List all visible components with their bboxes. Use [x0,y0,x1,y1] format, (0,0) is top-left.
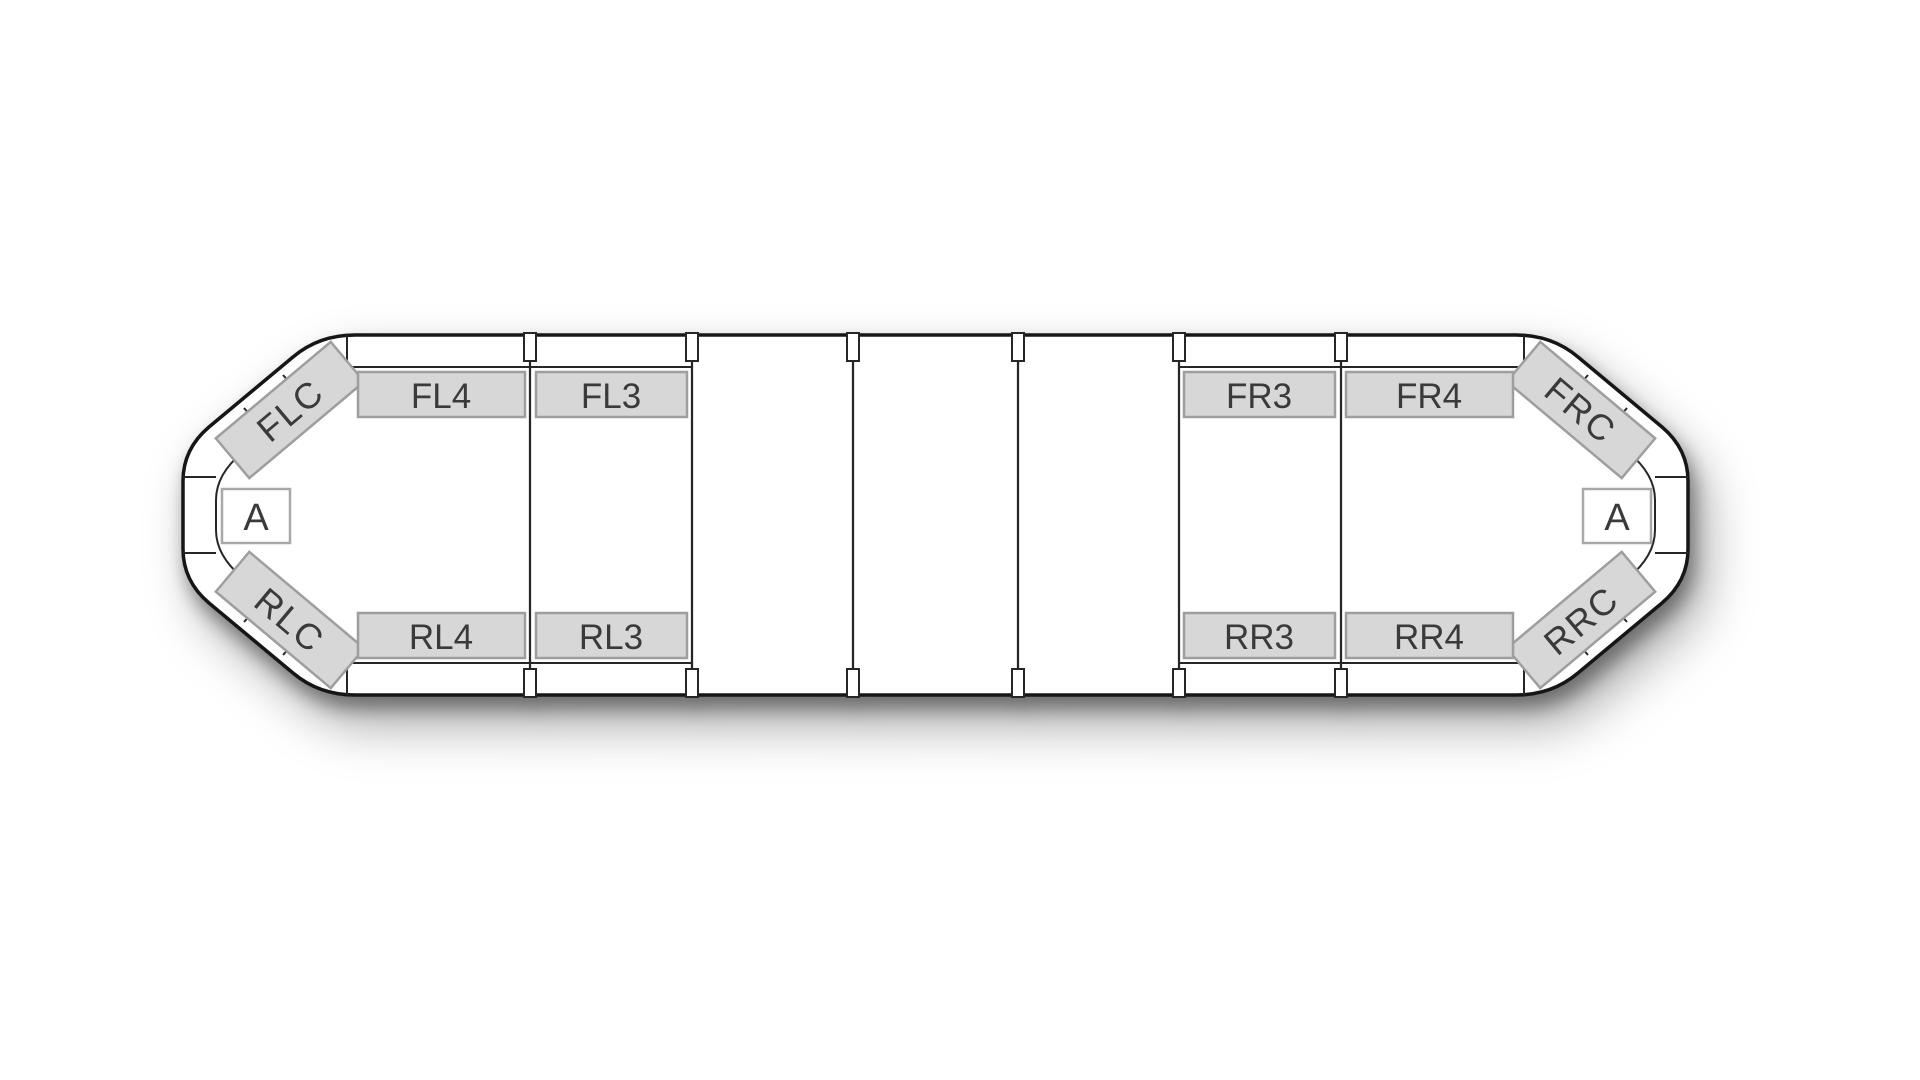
divider-clip [847,333,859,361]
left-end-label: A [243,497,269,539]
right-end-label: A [1604,497,1630,539]
module-fl4-label: FL4 [411,377,471,416]
divider-clip [1173,669,1185,697]
divider-clip [1335,333,1347,361]
module-fr3-label: FR3 [1226,377,1292,416]
divider-clip [1335,669,1347,697]
module-rr4-label: RR4 [1394,618,1464,657]
divider-clip [1012,333,1024,361]
divider-clip [1173,333,1185,361]
divider-clip [686,333,698,361]
lightbar-diagram: FLC RLC FRC RRC FL4 FL3 FR3 FR4 [0,0,1920,1080]
divider-clip [686,669,698,697]
divider-clip [524,333,536,361]
module-fl3-label: FL3 [581,377,641,416]
page-background: FLC RLC FRC RRC FL4 FL3 FR3 FR4 [0,0,1920,1080]
module-rl3-label: RL3 [579,618,643,657]
divider-clip [847,669,859,697]
module-rr3-label: RR3 [1224,618,1294,657]
divider-clip [1012,669,1024,697]
module-rl4-label: RL4 [409,618,473,657]
divider-clip [524,669,536,697]
module-fr4-label: FR4 [1396,377,1462,416]
